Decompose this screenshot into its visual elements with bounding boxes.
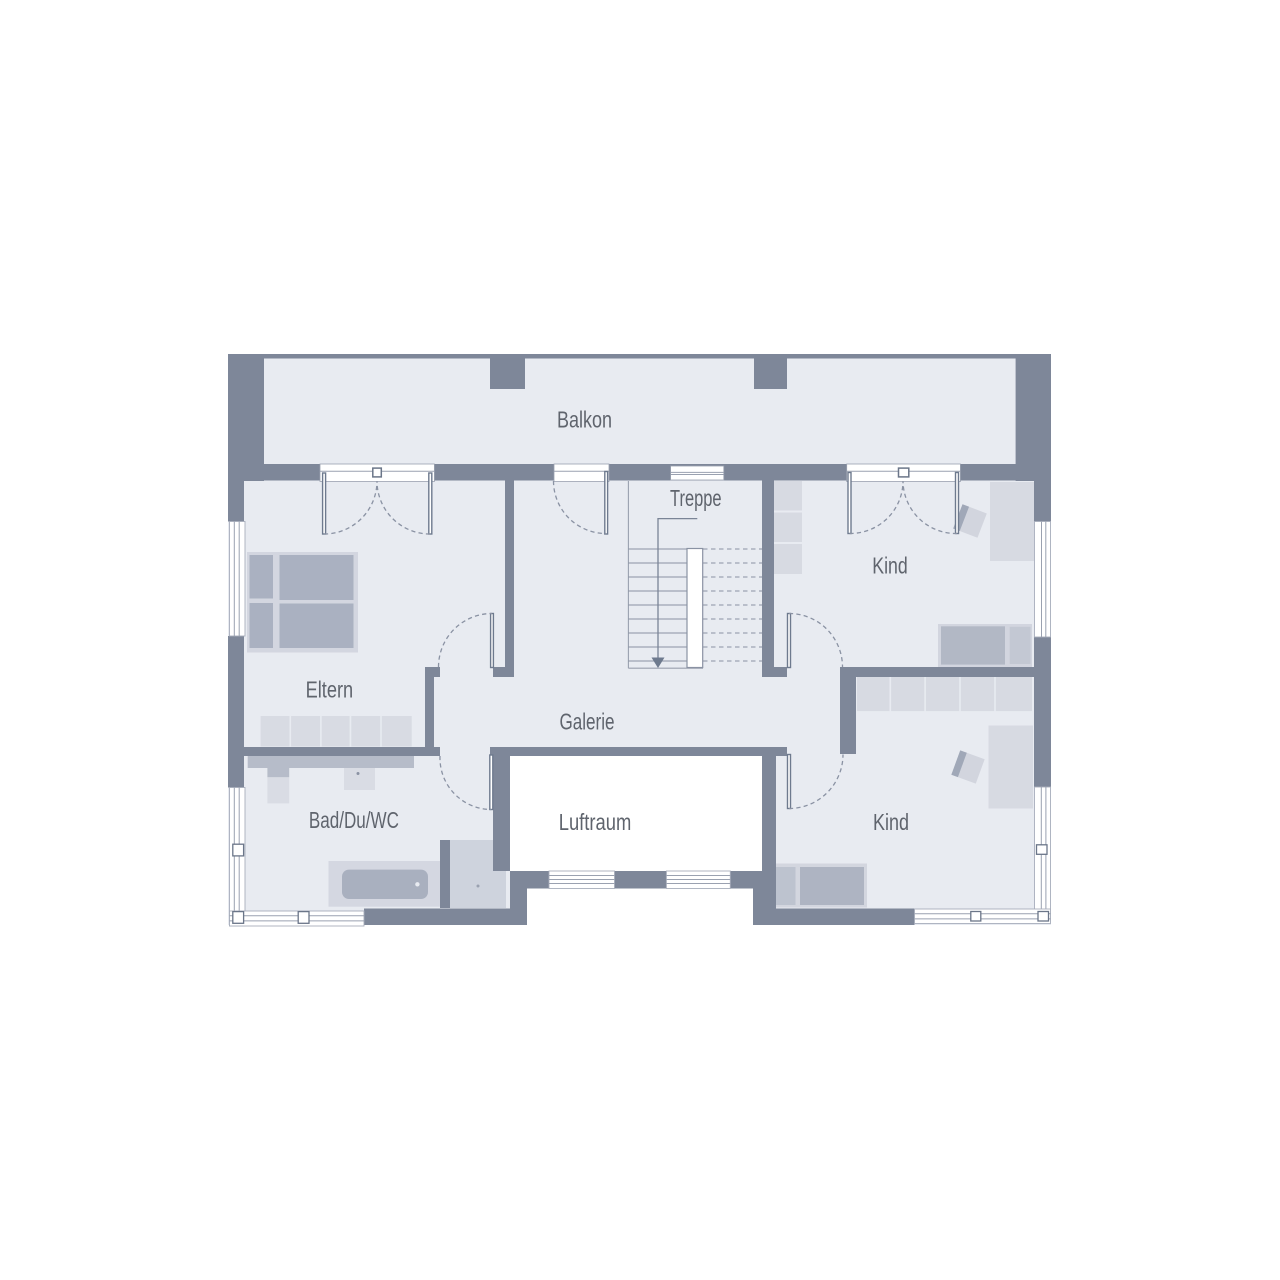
svg-text:Luftraum: Luftraum <box>559 809 632 835</box>
svg-text:Bad/Du/WC: Bad/Du/WC <box>309 807 399 833</box>
svg-text:Eltern: Eltern <box>306 677 354 703</box>
svg-text:Kind: Kind <box>873 809 909 835</box>
svg-text:Balkon: Balkon <box>557 407 612 433</box>
svg-text:Treppe: Treppe <box>670 485 722 511</box>
svg-text:Kind: Kind <box>872 553 908 579</box>
svg-text:Galerie: Galerie <box>560 708 615 734</box>
